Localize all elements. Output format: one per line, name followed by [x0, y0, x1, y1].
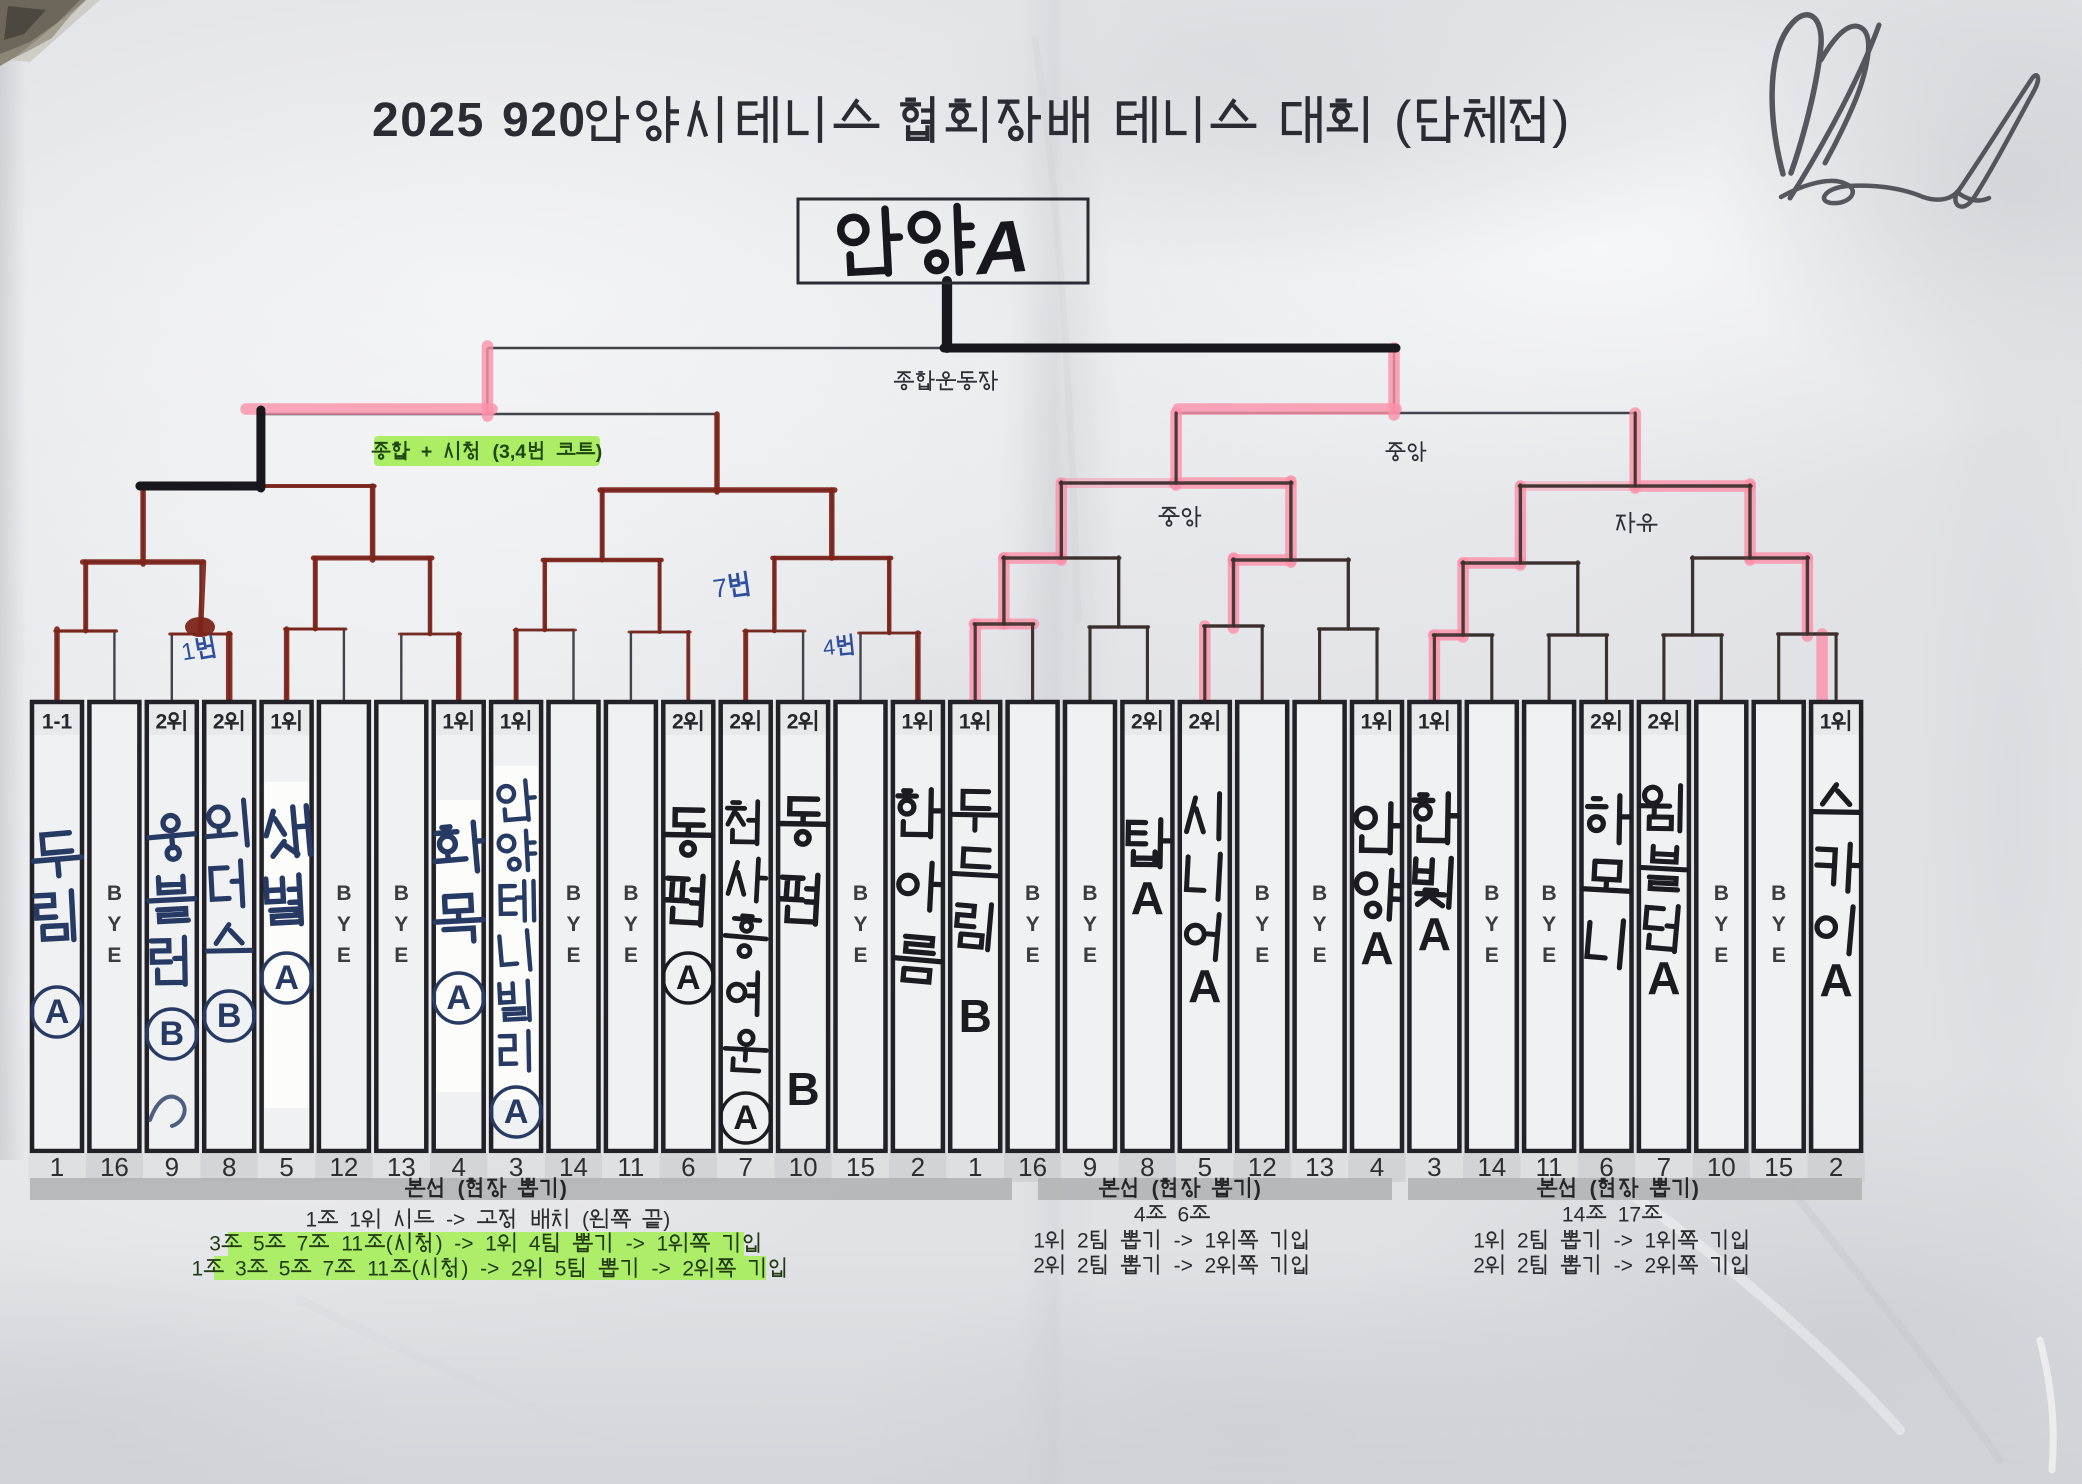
svg-text:11: 11: [367, 1257, 389, 1280]
svg-text:Y: Y: [1485, 913, 1499, 936]
svg-text:Y: Y: [1083, 913, 1097, 936]
svg-text:2: 2: [1205, 1254, 1217, 1277]
svg-text:1: 1: [191, 1257, 203, 1280]
svg-text:B: B: [1714, 882, 1729, 905]
svg-text:2: 2: [1590, 710, 1602, 733]
svg-text:8: 8: [222, 1152, 236, 1182]
svg-text:A: A: [1188, 960, 1221, 1012]
svg-text:B: B: [566, 882, 581, 905]
svg-text:16: 16: [1018, 1152, 1047, 1182]
svg-text:Y: Y: [337, 913, 351, 936]
svg-text:B: B: [160, 1015, 185, 1053]
svg-text:E: E: [853, 944, 867, 967]
svg-text:(: (: [1394, 91, 1412, 149]
svg-text:->: ->: [454, 1232, 473, 1255]
svg-text:1: 1: [349, 1208, 361, 1231]
svg-text:1: 1: [1418, 710, 1430, 733]
svg-text:B: B: [1025, 882, 1040, 905]
svg-text:1: 1: [901, 710, 913, 733]
svg-text:14: 14: [1562, 1203, 1586, 1226]
svg-text:2: 2: [1829, 1152, 1843, 1182]
svg-text:): ): [1254, 1177, 1261, 1200]
svg-text:1: 1: [968, 1152, 982, 1182]
svg-text:A: A: [1647, 952, 1680, 1004]
svg-text:A: A: [1819, 954, 1852, 1006]
svg-text:14: 14: [1477, 1152, 1506, 1182]
svg-text:1: 1: [1033, 1229, 1045, 1252]
svg-text:1: 1: [485, 1232, 497, 1255]
svg-text:1: 1: [1820, 710, 1832, 733]
svg-text:Y: Y: [1313, 913, 1327, 936]
svg-text:Y: Y: [394, 913, 408, 936]
svg-text:B: B: [1255, 882, 1270, 905]
svg-text:7: 7: [1657, 1152, 1671, 1182]
svg-text:2025: 2025: [372, 94, 485, 147]
svg-text:12: 12: [329, 1152, 358, 1182]
svg-text:9: 9: [1083, 1152, 1097, 1182]
svg-text:Y: Y: [1542, 913, 1556, 936]
svg-text:10: 10: [789, 1152, 818, 1182]
svg-text:A: A: [446, 979, 471, 1017]
svg-text:11: 11: [1536, 1152, 1563, 1182]
svg-text:3: 3: [1427, 1152, 1441, 1182]
svg-text:Y: Y: [1772, 913, 1786, 936]
svg-text:2: 2: [729, 710, 741, 733]
svg-text:E: E: [1542, 944, 1556, 967]
svg-text:2: 2: [1648, 710, 1660, 733]
svg-text:B: B: [1771, 882, 1786, 905]
svg-text:->: ->: [651, 1257, 670, 1280]
svg-text:): ): [1692, 1177, 1699, 1200]
svg-text:5: 5: [279, 1257, 291, 1280]
svg-text:E: E: [394, 944, 408, 967]
svg-text:5: 5: [1198, 1152, 1212, 1182]
svg-text:E: E: [1083, 944, 1097, 967]
svg-text:16: 16: [100, 1152, 129, 1182]
svg-text:2: 2: [1033, 1254, 1045, 1277]
svg-text:A: A: [971, 204, 1032, 291]
svg-text:2: 2: [1131, 710, 1143, 733]
svg-text:): ): [461, 1257, 468, 1280]
svg-text:): ): [1552, 91, 1569, 149]
svg-text:B: B: [1542, 882, 1557, 905]
svg-text:2: 2: [911, 1152, 925, 1182]
svg-text:B: B: [1082, 882, 1097, 905]
svg-text:B: B: [786, 1063, 819, 1115]
svg-text:A: A: [1418, 908, 1451, 960]
svg-text:4: 4: [822, 634, 837, 660]
svg-text:1: 1: [1473, 1229, 1485, 1252]
svg-text:->: ->: [446, 1208, 465, 1231]
svg-text:+: +: [421, 441, 432, 463]
svg-text:2: 2: [1077, 1229, 1089, 1252]
svg-text:A: A: [1131, 872, 1164, 924]
svg-text:5: 5: [279, 1152, 293, 1182]
svg-text:17: 17: [1618, 1203, 1641, 1226]
svg-text:A: A: [676, 959, 701, 997]
svg-text:Y: Y: [1714, 913, 1728, 936]
svg-text:1: 1: [1645, 1229, 1657, 1252]
svg-text:1: 1: [50, 1152, 64, 1182]
svg-text:Y: Y: [1255, 913, 1269, 936]
svg-text:10: 10: [1707, 1152, 1736, 1182]
svg-text:1: 1: [306, 1208, 318, 1231]
svg-text:A: A: [45, 993, 70, 1031]
svg-text:->: ->: [626, 1232, 645, 1255]
svg-text:B: B: [1484, 882, 1499, 905]
svg-text:2: 2: [1077, 1254, 1089, 1277]
svg-text:2: 2: [1473, 1254, 1485, 1277]
svg-text:A: A: [733, 1099, 758, 1137]
svg-text:Y: Y: [566, 913, 580, 936]
svg-text:->: ->: [1614, 1229, 1633, 1252]
svg-text:B: B: [394, 882, 409, 905]
svg-text:E: E: [1714, 944, 1728, 967]
svg-text:6: 6: [681, 1152, 695, 1182]
svg-text:E: E: [624, 944, 638, 967]
svg-text:2: 2: [787, 710, 799, 733]
svg-text:E: E: [566, 944, 580, 967]
svg-text:A: A: [274, 959, 299, 997]
svg-text:1: 1: [1361, 710, 1373, 733]
svg-text:3: 3: [509, 1152, 523, 1182]
svg-text:): ): [560, 1177, 567, 1200]
svg-text:E: E: [1772, 944, 1786, 967]
svg-text:A: A: [1360, 922, 1393, 974]
svg-text:->: ->: [1174, 1254, 1193, 1277]
svg-text:5: 5: [253, 1232, 265, 1255]
svg-text:B: B: [623, 882, 638, 905]
svg-text:A: A: [504, 1093, 529, 1131]
svg-text:6: 6: [1177, 1203, 1189, 1226]
svg-text:3: 3: [209, 1232, 221, 1255]
svg-text:2: 2: [1645, 1254, 1657, 1277]
svg-text:(: (: [458, 1177, 465, 1200]
svg-text:(: (: [386, 1232, 393, 1255]
svg-text:Y: Y: [107, 913, 121, 936]
svg-text:2: 2: [672, 710, 684, 733]
svg-text:1: 1: [1205, 1229, 1217, 1252]
svg-text:(: (: [582, 1208, 589, 1231]
svg-text:1: 1: [270, 710, 282, 733]
svg-text:1-1: 1-1: [42, 710, 73, 733]
svg-text:11: 11: [617, 1152, 644, 1182]
svg-text:->: ->: [1614, 1254, 1633, 1277]
svg-text:(: (: [412, 1257, 419, 1280]
svg-text:7: 7: [738, 1152, 752, 1182]
svg-text:(3,4: (3,4: [492, 441, 526, 463]
svg-text:2: 2: [155, 710, 167, 733]
svg-text:15: 15: [846, 1152, 875, 1182]
svg-text:2: 2: [682, 1257, 694, 1280]
svg-text:2: 2: [1188, 710, 1200, 733]
svg-text:2: 2: [1517, 1229, 1529, 1252]
svg-text:2: 2: [213, 710, 225, 733]
svg-text:): ): [436, 1232, 443, 1255]
svg-text:B: B: [1312, 882, 1327, 905]
svg-text:4: 4: [529, 1232, 541, 1255]
svg-text:1: 1: [442, 710, 454, 733]
svg-text:7: 7: [297, 1232, 309, 1255]
svg-text:E: E: [1313, 944, 1327, 967]
svg-text:7: 7: [322, 1257, 334, 1280]
svg-text:1: 1: [500, 710, 512, 733]
svg-text:920: 920: [502, 94, 587, 147]
svg-text:B: B: [959, 990, 992, 1042]
svg-text:(: (: [1152, 1177, 1159, 1200]
svg-text:9: 9: [165, 1152, 179, 1182]
svg-text:2: 2: [1517, 1254, 1529, 1277]
svg-text:13: 13: [387, 1152, 416, 1182]
svg-text:4: 4: [1134, 1203, 1146, 1226]
svg-text:B: B: [853, 882, 868, 905]
svg-text:13: 13: [1305, 1152, 1334, 1182]
svg-text:2: 2: [511, 1257, 523, 1280]
svg-text:5: 5: [555, 1257, 567, 1280]
svg-text:E: E: [1485, 944, 1499, 967]
svg-text:E: E: [1026, 944, 1040, 967]
svg-text:11: 11: [341, 1232, 363, 1255]
svg-text:E: E: [107, 944, 121, 967]
svg-text:): ): [596, 441, 603, 463]
svg-text:->: ->: [480, 1257, 499, 1280]
svg-text:B: B: [217, 997, 242, 1035]
svg-text:Y: Y: [853, 913, 867, 936]
svg-text:Y: Y: [1026, 913, 1040, 936]
svg-text:(: (: [1590, 1177, 1597, 1200]
svg-text:E: E: [337, 944, 351, 967]
svg-text:12: 12: [1248, 1152, 1277, 1182]
svg-text:): ): [663, 1208, 670, 1231]
svg-text:E: E: [1255, 944, 1269, 967]
svg-text:4: 4: [1370, 1152, 1384, 1182]
svg-text:1: 1: [657, 1232, 669, 1255]
svg-text:1: 1: [959, 710, 971, 733]
svg-text:15: 15: [1764, 1152, 1793, 1182]
svg-text:->: ->: [1174, 1229, 1193, 1252]
svg-text:B: B: [336, 882, 351, 905]
svg-text:Y: Y: [624, 913, 638, 936]
svg-text:3: 3: [235, 1257, 247, 1280]
svg-text:B: B: [107, 882, 122, 905]
